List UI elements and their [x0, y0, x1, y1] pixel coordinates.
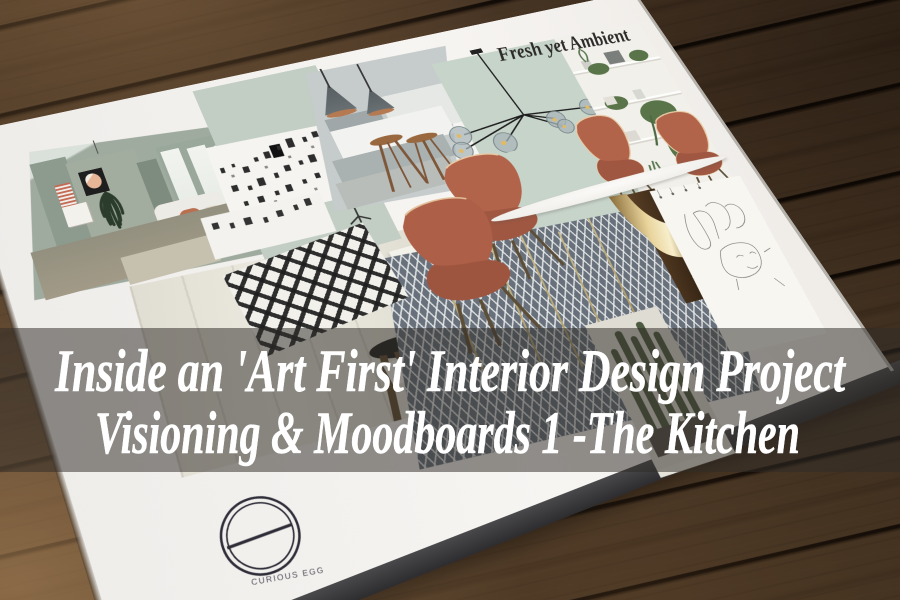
svg-text:Visioning & Moodboards 1 -The: Visioning & Moodboards 1 -The Kitchen — [95, 400, 800, 466]
svg-text:Inside an 'Art First' Interior: Inside an 'Art First' Interior Design Pr… — [54, 338, 846, 404]
